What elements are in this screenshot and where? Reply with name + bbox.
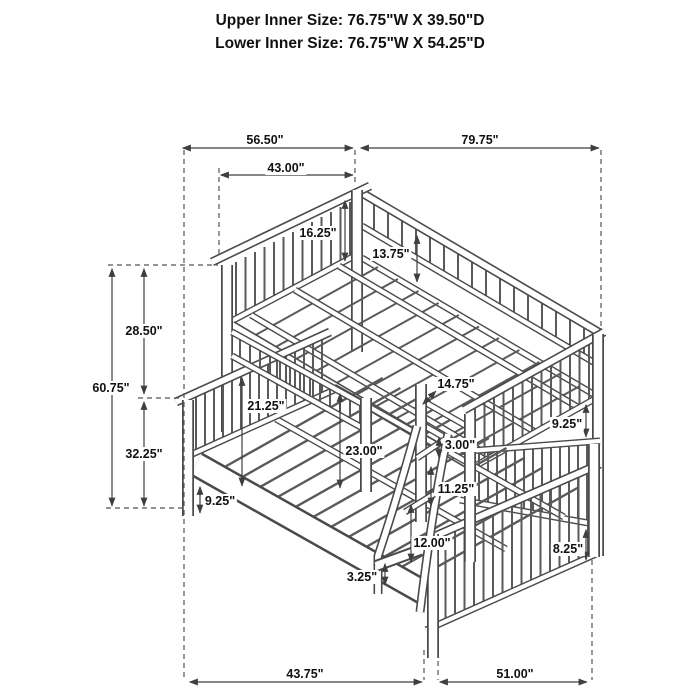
dim-label-overall-depth: 56.50" — [244, 133, 285, 147]
dim-label-upper-section-height: 28.50" — [123, 324, 164, 338]
dim-label-upper-bed-depth: 43.00" — [265, 161, 306, 175]
dim-label-upper-guardrail-height: 13.75" — [370, 247, 411, 261]
dim-label-ladder-opening-width: 14.75" — [435, 377, 476, 391]
dim-label-top-step-gap: 3.00" — [443, 438, 477, 452]
upper-back-guardrail — [362, 193, 600, 398]
dim-label-deck-to-rail-height: 23.00" — [343, 444, 384, 458]
dim-label-left-rail-height: 9.25" — [203, 494, 237, 508]
dim-label-right-rail-height: 8.25" — [551, 542, 585, 556]
dim-label-right-rail-gap: 9.25" — [550, 417, 584, 431]
dimension-diagram: Upper Inner Size: 76.75"W X 39.50"D Lowe… — [0, 0, 700, 700]
bunk-bed-drawing — [0, 0, 700, 700]
dim-label-lower-section-height: 32.25" — [123, 447, 164, 461]
dim-label-mid-step-gap: 11.25" — [436, 482, 477, 496]
dim-label-floor-depth-left: 43.75" — [284, 667, 325, 681]
dim-label-bottom-step-gap: 12.00" — [411, 536, 452, 550]
dim-label-under-bunk-clearance: 21.25" — [245, 399, 286, 413]
dim-label-step-to-floor: 3.25" — [345, 570, 379, 584]
dim-label-floor-length-right: 51.00" — [494, 667, 535, 681]
dim-label-overall-length: 79.75" — [459, 133, 500, 147]
dim-label-headboard-above-deck: 16.25" — [297, 226, 338, 240]
dim-label-overall-height: 60.75" — [90, 381, 131, 395]
